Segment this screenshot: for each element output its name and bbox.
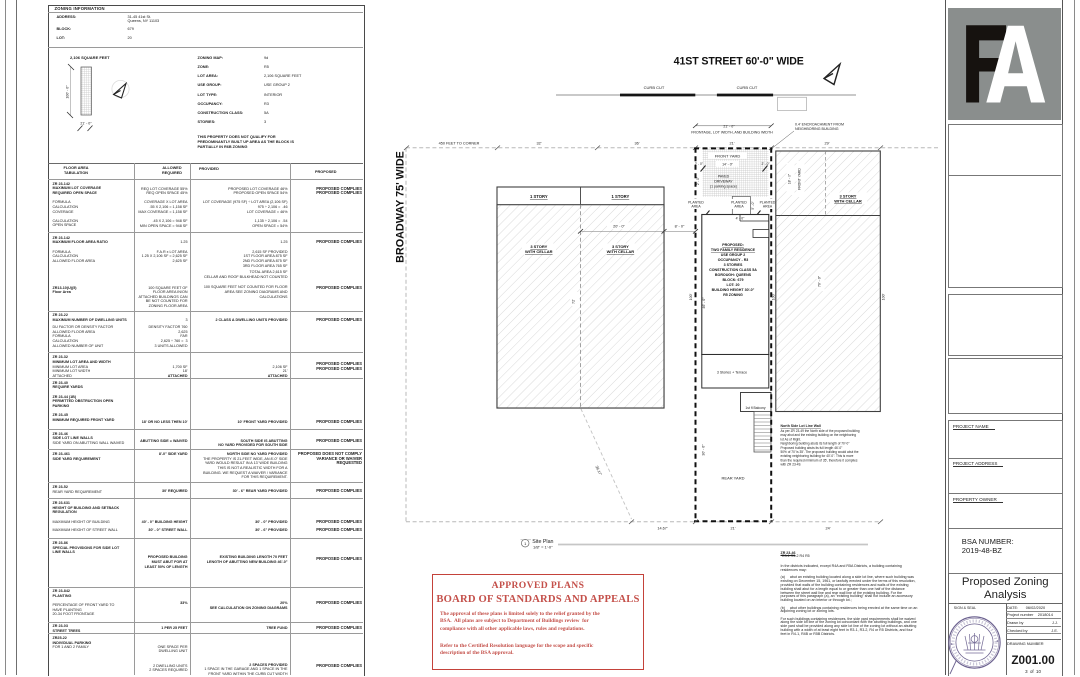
svg-text:100': 100' [882, 293, 886, 300]
svg-text:36.17': 36.17' [595, 465, 603, 476]
svg-text:WITH CELLAR: WITH CELLAR [607, 249, 635, 254]
svg-text:21' - 0": 21' - 0" [723, 125, 735, 129]
svg-text:1/8" = 1'-0": 1/8" = 1'-0" [533, 544, 553, 549]
svg-text:R5 ZONING: R5 ZONING [723, 293, 743, 297]
svg-text:32': 32' [537, 142, 542, 146]
svg-text:DRIVEWAY: DRIVEWAY [714, 180, 733, 184]
svg-text:1 STORY: 1 STORY [530, 194, 548, 199]
svg-text:BOROUGH: QUEENS: BOROUGH: QUEENS [715, 273, 752, 277]
svg-text:NEIGHBORING BUILDING: NEIGHBORING BUILDING [795, 127, 839, 131]
svg-text:WITH CELLAR: WITH CELLAR [525, 249, 553, 254]
svg-text:21' - 0": 21' - 0" [80, 122, 92, 126]
svg-text:FRONT YARD: FRONT YARD [715, 154, 741, 159]
svg-text:WITH CELLAR: WITH CELLAR [834, 199, 862, 204]
svg-text:LOT: 20: LOT: 20 [727, 283, 740, 287]
svg-text:CURB CUT: CURB CUT [737, 85, 758, 90]
svg-text:1st fl Balcony: 1st fl Balcony [745, 406, 765, 410]
svg-text:18' - 0": 18' - 0" [788, 173, 792, 184]
svg-text:CURB CUT: CURB CUT [644, 85, 665, 90]
svg-text:CONSTRUCTION CLASS 5A: CONSTRUCTION CLASS 5A [709, 268, 757, 272]
svg-text:72': 72' [572, 299, 576, 304]
svg-text:4' - 0": 4' - 0" [736, 216, 745, 220]
svg-text:PROPOSED:: PROPOSED: [722, 243, 744, 247]
svg-text:8' - 0": 8' - 0" [675, 225, 685, 229]
svg-text:20' - 0": 20' - 0" [613, 225, 625, 229]
svg-text:14.67': 14.67' [657, 527, 668, 531]
svg-text:21': 21' [730, 142, 735, 146]
svg-text:1 STORY: 1 STORY [612, 194, 630, 199]
svg-text:2' - 0": 2' - 0" [696, 177, 700, 185]
svg-text:AREA: AREA [734, 205, 744, 209]
svg-text:100': 100' [689, 293, 693, 300]
svg-text:REAR YARD: REAR YARD [722, 476, 745, 481]
svg-text:FRONT YARD: FRONT YARD [798, 168, 802, 190]
svg-text:BROADWAY 75' WIDE: BROADWAY 75' WIDE [395, 151, 407, 263]
svg-text:29': 29' [825, 142, 830, 146]
svg-text:46' - 0": 46' - 0" [702, 297, 706, 309]
svg-text:(1 parking space): (1 parking space) [710, 185, 737, 189]
svg-text:36': 36' [635, 142, 640, 146]
svg-text:30' - 6": 30' - 6" [702, 444, 706, 456]
svg-text:2' - 0": 2' - 0" [761, 162, 769, 166]
svg-text:450 FEET TO CORNER: 450 FEET TO CORNER [439, 142, 480, 146]
svg-text:0.4' ENCROACHMENT FROM: 0.4' ENCROACHMENT FROM [795, 123, 844, 127]
svg-text:70' - 0": 70' - 0" [818, 275, 822, 287]
svg-text:AREA: AREA [691, 205, 701, 209]
svg-text:24': 24' [826, 527, 831, 531]
svg-text:OCCUPANCY - R3: OCCUPANCY - R3 [718, 258, 749, 262]
svg-text:USE GROUP 2: USE GROUP 2 [721, 253, 746, 257]
svg-text:TWO FAMILY RESIDENCE: TWO FAMILY RESIDENCE [711, 248, 756, 252]
svg-text:FRONTAGE, LOT WIDTH, AND BUILD: FRONTAGE, LOT WIDTH, AND BUILDING WIDTH [691, 131, 773, 135]
svg-text:1: 1 [524, 541, 527, 546]
svg-text:3 STORIES: 3 STORIES [724, 263, 743, 267]
svg-text:with ZR 23-49.: with ZR 23-49. [781, 463, 802, 467]
svg-text:5' - 0": 5' - 0" [751, 201, 755, 209]
svg-text:North Side Lot Line Wall: North Side Lot Line Wall [781, 424, 821, 428]
svg-text:PAVED: PAVED [718, 175, 730, 179]
svg-text:3 Stories + Terrace: 3 Stories + Terrace [717, 370, 747, 374]
svg-text:BUILDING HEIGHT 30'-0": BUILDING HEIGHT 30'-0" [712, 288, 755, 292]
svg-text:14' - 0": 14' - 0" [722, 163, 734, 167]
svg-text:41ST STREET 60'-0" WIDE: 41ST STREET 60'-0" WIDE [674, 56, 804, 68]
svg-text:21': 21' [731, 527, 736, 531]
svg-text:100' - 0": 100' - 0" [65, 85, 69, 99]
svg-text:AREA: AREA [763, 205, 773, 209]
svg-text:BLOCK: 679: BLOCK: 679 [723, 278, 744, 282]
